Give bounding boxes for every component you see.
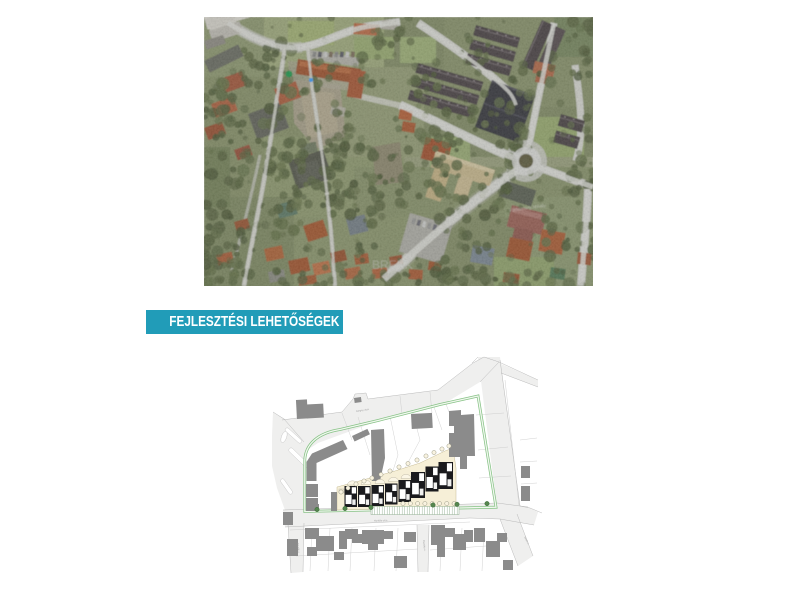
svg-text:Harkály utca: Harkály utca [374,519,388,522]
